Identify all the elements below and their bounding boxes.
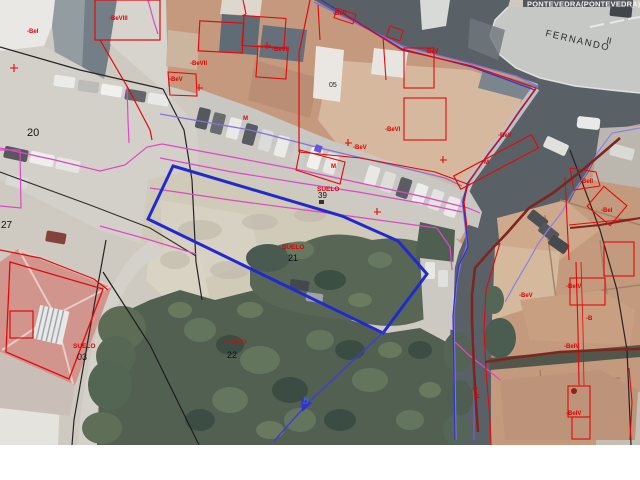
svg-text:-BeVI: -BeVI [385, 127, 401, 133]
svg-text:-BeV: -BeV [498, 133, 512, 139]
svg-text:M: M [243, 116, 248, 122]
svg-text:-BeII: -BeII [580, 179, 593, 185]
svg-text:-BeV: -BeV [353, 145, 367, 151]
svg-text:-BeV: -BeV [333, 11, 347, 17]
svg-text:-BeVII: -BeVII [190, 61, 207, 67]
svg-text:-BeV: -BeV [519, 293, 533, 299]
svg-text:-BeIV: -BeIV [566, 284, 581, 290]
svg-text:05: 05 [329, 82, 337, 89]
svg-text:SUELO: SUELO [282, 244, 304, 251]
svg-text:M: M [331, 164, 336, 170]
svg-text:-BeIV: -BeIV [564, 344, 579, 350]
svg-text:27: 27 [1, 220, 13, 231]
svg-text:M: M [484, 160, 489, 166]
svg-text:-BeV: -BeV [169, 77, 183, 83]
svg-text:22: 22 [227, 350, 237, 360]
svg-text:-BeI: -BeI [27, 29, 39, 35]
svg-text:-BeVIII: -BeVIII [109, 16, 128, 22]
svg-text:SUELO: SUELO [73, 343, 95, 350]
svg-text:39: 39 [318, 191, 327, 200]
svg-text:-BeIV: -BeIV [566, 411, 581, 417]
svg-text:PONTEVEDRA(PONTEVEDRA): PONTEVEDRA(PONTEVEDRA) [527, 0, 640, 9]
svg-text:SUELO: SUELO [224, 339, 246, 346]
svg-text:-BeI: -BeI [601, 208, 613, 214]
svg-text:-BeVII: -BeVII [272, 47, 289, 53]
svg-text:03: 03 [77, 352, 87, 362]
svg-text:-BeV: -BeV [425, 49, 439, 55]
svg-text:-B: -B [586, 316, 593, 322]
svg-text:20: 20 [27, 127, 39, 139]
svg-text:21: 21 [288, 253, 298, 263]
